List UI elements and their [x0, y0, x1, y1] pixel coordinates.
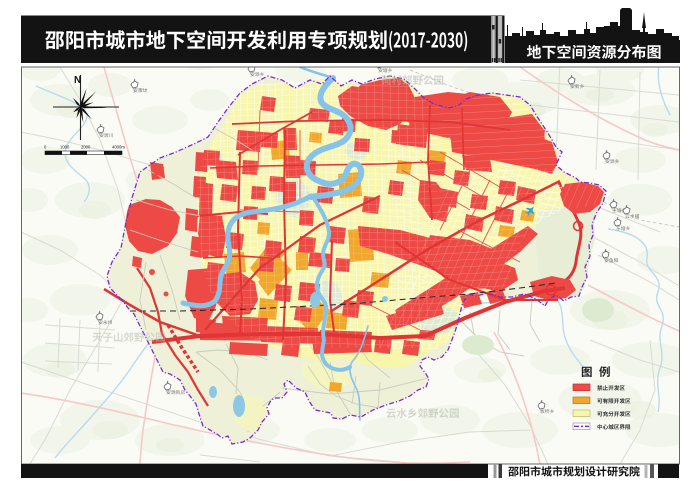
svg-text:2000: 2000	[81, 145, 91, 150]
svg-text:N: N	[74, 75, 81, 86]
svg-text:4000m: 4000m	[112, 145, 125, 150]
svg-text:1000: 1000	[60, 145, 70, 150]
